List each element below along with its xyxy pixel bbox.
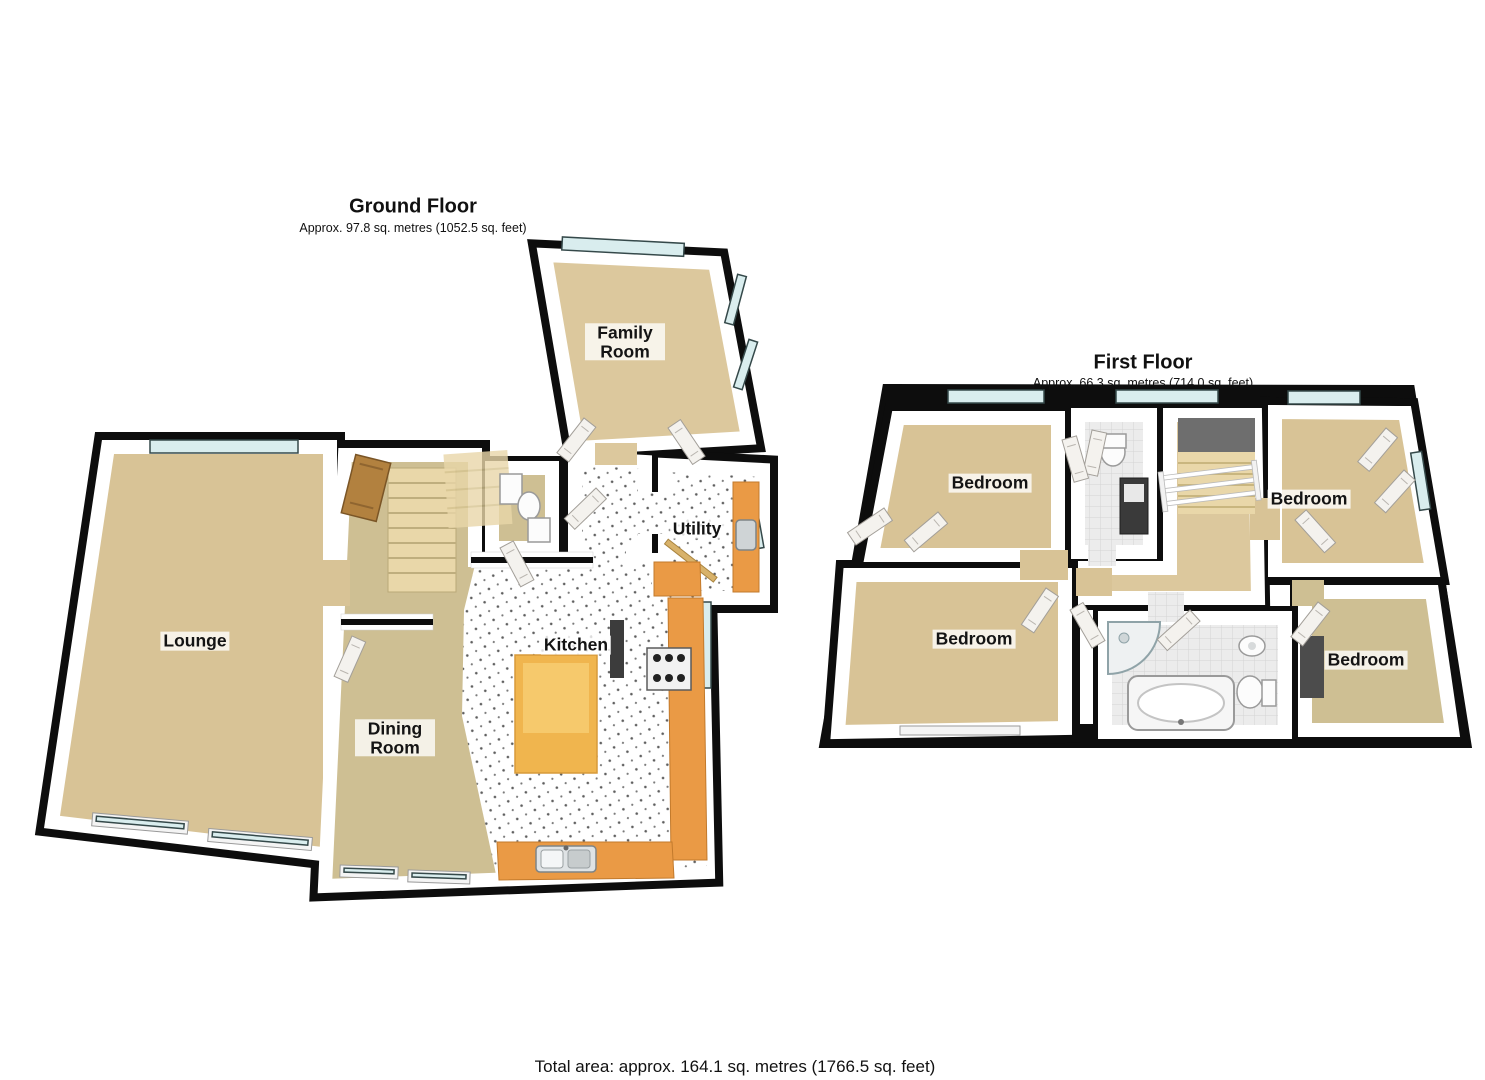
- family-room-label: Family Room: [585, 323, 665, 360]
- bedroom-bl-floor: [838, 575, 1065, 732]
- basin-icon: [1239, 636, 1265, 656]
- ground-floor-subtitle: Approx. 97.8 sq. metres (1052.5 sq. feet…: [299, 221, 526, 235]
- bedroom-bl-sill: [900, 726, 1020, 735]
- hob-icon: [647, 648, 691, 690]
- landing-window: [1116, 390, 1218, 403]
- first-floor-subtitle: Approx. 66.3 sq. metres (714.0 sq. feet): [1033, 376, 1253, 390]
- floorplan-page: Ground Floor Approx. 97.8 sq. metres (10…: [0, 0, 1485, 1080]
- utility-sink-icon: [736, 520, 756, 550]
- bedroom-tl-window: [948, 390, 1044, 403]
- lounge-label: Lounge: [160, 632, 229, 651]
- floorplan-drawing: [0, 0, 1485, 1080]
- lounge-floor: [52, 447, 330, 855]
- bathtub-icon: [1128, 676, 1234, 730]
- bedroom-bottom-right-label: Bedroom: [1325, 651, 1408, 670]
- kitchen-label: Kitchen: [541, 636, 611, 655]
- ground-floor-title: Ground Floor: [349, 196, 477, 219]
- dining-room-label: Dining Room: [355, 719, 435, 756]
- utility-label: Utility: [670, 520, 725, 539]
- bedroom-top-right-label: Bedroom: [1268, 490, 1351, 509]
- bedroom-bottom-left-label: Bedroom: [933, 630, 1016, 649]
- first-floor-plan: [833, 390, 1458, 736]
- fridge-icon: [610, 620, 624, 678]
- first-floor-title: First Floor: [1094, 352, 1193, 375]
- total-area-text: Total area: approx. 164.1 sq. metres (17…: [535, 1057, 936, 1077]
- kitchen-sink-icon: [536, 846, 596, 873]
- bedroom-tr-window: [1288, 391, 1360, 404]
- bedroom-top-left-label: Bedroom: [949, 474, 1032, 493]
- basin-icon: [528, 518, 550, 542]
- lounge-window: [150, 440, 298, 453]
- toilet-icon: [518, 492, 540, 520]
- toilet-icon: [1237, 676, 1276, 708]
